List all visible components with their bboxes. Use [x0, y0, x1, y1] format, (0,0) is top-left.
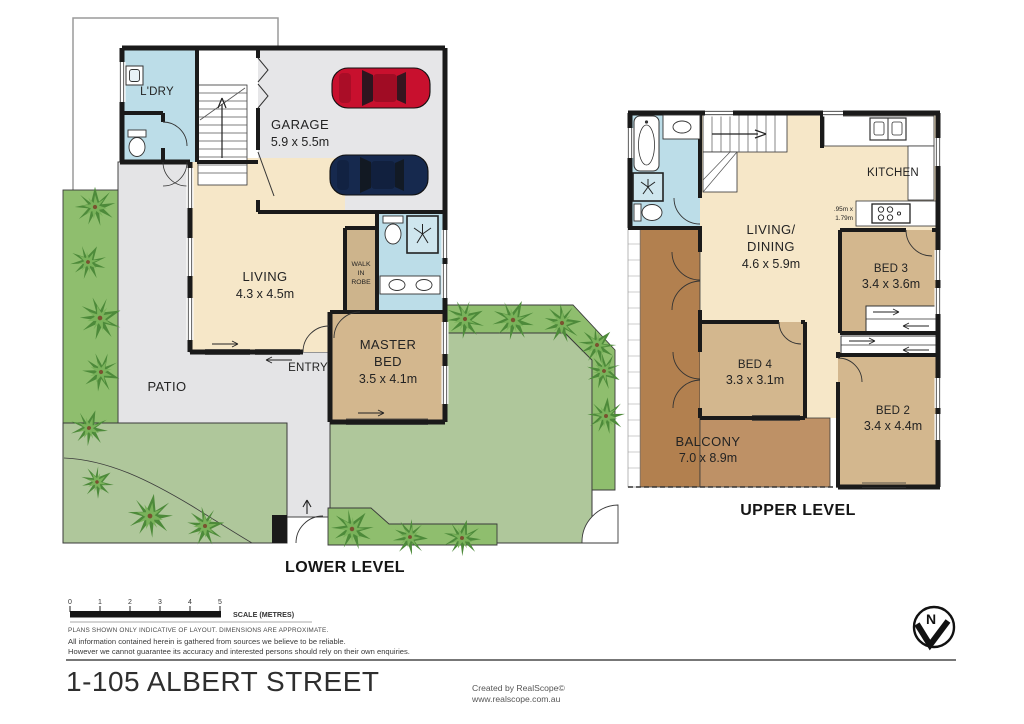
upper-level-plan: KITCHEN .95m x 1.79m LIVING/ DINING 4.6 … — [627, 110, 942, 520]
vanity-upper-icon — [663, 115, 700, 139]
bed4-label: BED 4 — [738, 359, 773, 371]
disclaimer-line-1: PLANS SHOWN ONLY INDICATIVE OF LAYOUT. D… — [68, 627, 328, 634]
shower-upper-icon — [633, 173, 663, 201]
floorplan-drawing: L'DRY GARAGE 5.9 x 5.5m LIVING 4.3 x 4.5… — [0, 0, 1024, 724]
shower-lower-icon — [407, 216, 438, 253]
wir-label-3: ROBE — [351, 279, 371, 286]
blue-car-icon — [330, 155, 428, 195]
scale-tick-0: 0 — [68, 599, 72, 606]
hallway-floor — [805, 322, 840, 418]
property-address-title: 1-105 ALBERT STREET — [66, 666, 380, 697]
garage-label: GARAGE — [271, 117, 329, 132]
living-dining-label-1: LIVING/ — [746, 222, 795, 237]
scale-tick-1: 1 — [98, 599, 102, 606]
credit-line-1: Created by RealScope© — [472, 683, 565, 693]
scale-tick-5: 5 — [218, 599, 222, 606]
scale-tick-3: 3 — [158, 599, 162, 606]
gate-door-arc — [296, 516, 323, 543]
living-dining-dims: 4.6 x 5.9m — [742, 257, 800, 271]
living-dining-label-2: DINING — [747, 239, 795, 254]
kitchen-bench-note-2: 1.79m — [835, 215, 853, 222]
balcony-label: BALCONY — [676, 434, 741, 449]
living-dims: 4.3 x 4.5m — [236, 287, 294, 301]
toilet-upper-icon — [634, 204, 662, 221]
scale-tick-2: 2 — [128, 599, 132, 606]
floorplan-page: L'DRY GARAGE 5.9 x 5.5m LIVING 4.3 x 4.5… — [0, 0, 1024, 724]
kitchen-label: KITCHEN — [867, 167, 919, 179]
toilet-bath-icon — [383, 216, 403, 244]
entry-label: ENTRY — [288, 362, 328, 374]
living-room — [190, 158, 345, 352]
north-compass-icon: N — [914, 607, 954, 647]
balcony-dims: 7.0 x 8.9m — [679, 451, 737, 465]
master-bed-label-1: MASTER — [360, 337, 417, 352]
garden-bed-left — [63, 190, 118, 425]
bed2-dims: 3.4 x 4.4m — [864, 419, 922, 433]
bed3-dims: 3.4 x 3.6m — [862, 277, 920, 291]
wir-label-1: WALK — [351, 261, 370, 268]
bed4-dims: 3.3 x 3.1m — [726, 373, 784, 387]
scale-bar-rect — [70, 611, 221, 618]
vanity-lower-icon — [380, 276, 440, 294]
scale-bar: 0 1 2 3 4 5 SCALE (METRES) — [68, 599, 312, 622]
bathtub-icon — [634, 116, 659, 171]
scale-units-label: SCALE (METRES) — [233, 610, 295, 619]
red-car-icon — [332, 68, 430, 108]
master-bed-dims: 3.5 x 4.1m — [359, 372, 417, 386]
kitchen-sink-icon — [870, 118, 906, 140]
laundry-label: L'DRY — [140, 86, 174, 98]
wir-label-2: IN — [358, 270, 365, 277]
upper-level-title: UPPER LEVEL — [740, 502, 856, 519]
bed3-label: BED 3 — [874, 263, 908, 275]
bed2-label: BED 2 — [876, 405, 910, 417]
patio-label: PATIO — [147, 379, 186, 394]
stairs-lower — [198, 85, 247, 185]
master-bed-label-2: BED — [374, 354, 402, 369]
cooktop-icon — [872, 204, 910, 223]
gate-wall — [272, 515, 287, 543]
kitchen-bench-note-1: .95m x — [834, 206, 854, 213]
footer: 0 1 2 3 4 5 SCALE (METRES) PLANS SHOWN O… — [66, 599, 956, 704]
north-letter: N — [926, 611, 936, 627]
lower-level-title: LOWER LEVEL — [285, 559, 405, 576]
disclaimer-line-3: However we cannot guarantee its accuracy… — [68, 647, 410, 656]
scale-tick-4: 4 — [188, 599, 192, 606]
balcony-deck-edge — [628, 228, 640, 487]
credit-line-2: www.realscope.com.au — [471, 694, 561, 704]
garage-dims: 5.9 x 5.5m — [271, 135, 329, 149]
disclaimer-line-2: All information contained herein is gath… — [68, 637, 346, 646]
living-label: LIVING — [242, 269, 287, 284]
toilet-lower-icon — [128, 130, 146, 157]
